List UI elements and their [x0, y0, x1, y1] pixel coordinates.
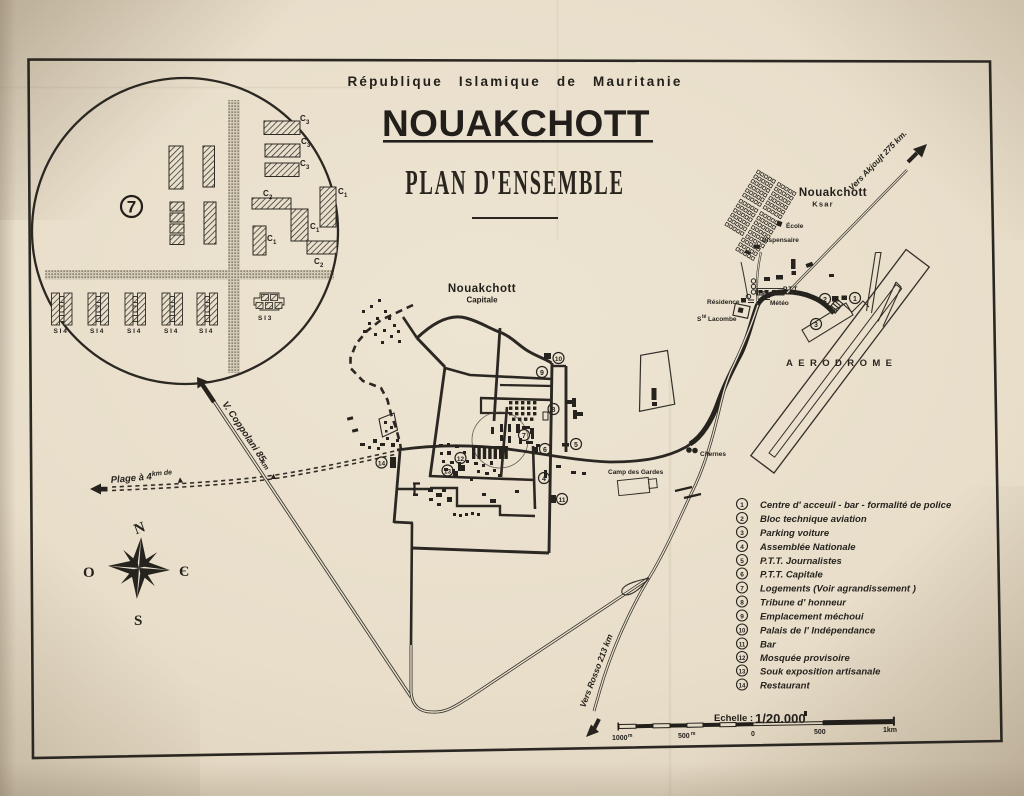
svg-text:N: N — [132, 519, 148, 538]
svg-text:5: 5 — [574, 442, 578, 449]
svg-text:2: 2 — [740, 516, 744, 523]
svg-text:Nouakchott: Nouakchott — [799, 187, 867, 199]
svg-text:8: 8 — [552, 407, 556, 414]
svg-text:Parking voiture: Parking voiture — [760, 528, 830, 539]
svg-text:9: 9 — [540, 370, 544, 377]
svg-text:11: 11 — [559, 497, 566, 504]
svg-text:2: 2 — [320, 263, 324, 269]
svg-text:Palais de l' Indépendance: Palais de l' Indépendance — [760, 626, 876, 637]
svg-text:Capitale: Capitale — [466, 296, 498, 305]
svg-text:Nouakchott: Nouakchott — [448, 283, 516, 295]
svg-text:7: 7 — [127, 198, 136, 217]
svg-text:4: 4 — [542, 476, 546, 483]
svg-text:té: té — [702, 314, 707, 320]
svg-text:T.P.: T.P. — [758, 291, 767, 297]
svg-text:500: 500 — [814, 729, 826, 736]
svg-text:Bar: Bar — [760, 640, 777, 651]
svg-text:6: 6 — [543, 447, 547, 454]
svg-text:Assemblée Nationale: Assemblée Nationale — [759, 542, 856, 553]
svg-text:Plage à 4: Plage à 4 — [110, 471, 153, 486]
svg-text:V. Coppolani 85: V. Coppolani 85 — [220, 400, 269, 465]
svg-text:m: m — [691, 731, 696, 737]
svg-text:8: 8 — [740, 600, 744, 607]
svg-text:500: 500 — [678, 733, 690, 740]
svg-text:Emplacement méchoui: Emplacement méchoui — [760, 612, 864, 623]
svg-text:13: 13 — [444, 469, 452, 476]
svg-text:P.T.T: P.T.T — [783, 286, 797, 293]
svg-text:P.T.T. Capitale: P.T.T. Capitale — [760, 570, 824, 581]
svg-text:AERODROME: AERODROME — [786, 358, 897, 369]
svg-text:10: 10 — [739, 629, 746, 635]
svg-text:11: 11 — [739, 643, 746, 649]
svg-text:Dispensaire: Dispensaire — [762, 237, 799, 244]
svg-text:7: 7 — [740, 586, 744, 593]
svg-text:Vers Akjoujt 275 km.: Vers Akjoujt 275 km. — [847, 129, 909, 192]
svg-text:Restaurant: Restaurant — [760, 681, 810, 692]
svg-text:Logements (Voir agrandissement: Logements (Voir agrandissement ) — [760, 584, 916, 595]
svg-text:14: 14 — [378, 461, 386, 468]
svg-text:3: 3 — [814, 322, 818, 329]
svg-text:9: 9 — [740, 614, 744, 621]
svg-text:Camp des Gardes: Camp des Gardes — [608, 469, 664, 476]
svg-text:S I 4: S I 4 — [54, 328, 68, 335]
svg-text:1: 1 — [316, 228, 320, 234]
svg-text:Vers Rosso 213 km: Vers Rosso 213 km — [578, 632, 615, 708]
svg-text:République Islamique de Mau: République Islamique de Mauritanie — [347, 74, 682, 89]
svg-text:2: 2 — [823, 297, 827, 304]
svg-text:PLAN D'ENSEMBLE: PLAN D'ENSEMBLE — [405, 165, 625, 203]
svg-text:Centre d' acceuil - bar - form: Centre d' acceuil - bar - formalité de p… — [760, 500, 952, 511]
svg-text:1: 1 — [740, 502, 744, 509]
svg-text:S: S — [134, 613, 142, 629]
svg-text:Tribune d' honneur: Tribune d' honneur — [760, 598, 847, 609]
svg-text:P.T.T. Journalistes: P.T.T. Journalistes — [760, 556, 842, 567]
svg-text:12: 12 — [739, 656, 746, 662]
svg-text:▲: ▲ — [269, 471, 278, 481]
svg-text:Météo: Météo — [770, 300, 789, 307]
svg-text:1: 1 — [344, 193, 348, 199]
svg-text:m: m — [628, 733, 633, 739]
svg-text:Є: Є — [179, 564, 189, 580]
svg-text:10: 10 — [555, 356, 563, 363]
svg-text:1000: 1000 — [612, 735, 628, 742]
svg-text:École: École — [786, 221, 804, 230]
svg-text:5: 5 — [740, 558, 744, 565]
svg-text:3: 3 — [740, 530, 744, 537]
svg-text:Citernes: Citernes — [700, 451, 726, 458]
svg-text:1: 1 — [273, 240, 277, 246]
svg-text:3: 3 — [306, 120, 310, 126]
svg-text:7: 7 — [522, 433, 526, 440]
svg-text:14: 14 — [739, 684, 746, 690]
svg-text:3: 3 — [306, 165, 310, 171]
svg-text:0: 0 — [751, 731, 755, 738]
svg-text:Mosquée provisoire: Mosquée provisoire — [760, 653, 850, 664]
svg-text:13: 13 — [739, 670, 746, 676]
svg-text:Lacombe: Lacombe — [708, 316, 737, 323]
svg-text:S I 3: S I 3 — [258, 315, 272, 322]
svg-text:12: 12 — [457, 456, 465, 463]
svg-text:4: 4 — [740, 544, 744, 551]
svg-text:1: 1 — [853, 296, 857, 303]
svg-text:Ksar: Ksar — [812, 200, 833, 209]
svg-text:O: O — [83, 565, 95, 581]
svg-text:6: 6 — [740, 572, 744, 579]
svg-text:NOUAKCHOTT: NOUAKCHOTT — [382, 103, 650, 144]
svg-text:km de: km de — [152, 469, 173, 478]
svg-text:1km: 1km — [883, 727, 897, 734]
svg-text:Souk exposition artisanale: Souk exposition artisanale — [760, 667, 881, 678]
svg-text:1/20.000: 1/20.000 — [755, 711, 806, 726]
svg-text:Bloc technique aviation: Bloc technique aviation — [760, 514, 867, 525]
